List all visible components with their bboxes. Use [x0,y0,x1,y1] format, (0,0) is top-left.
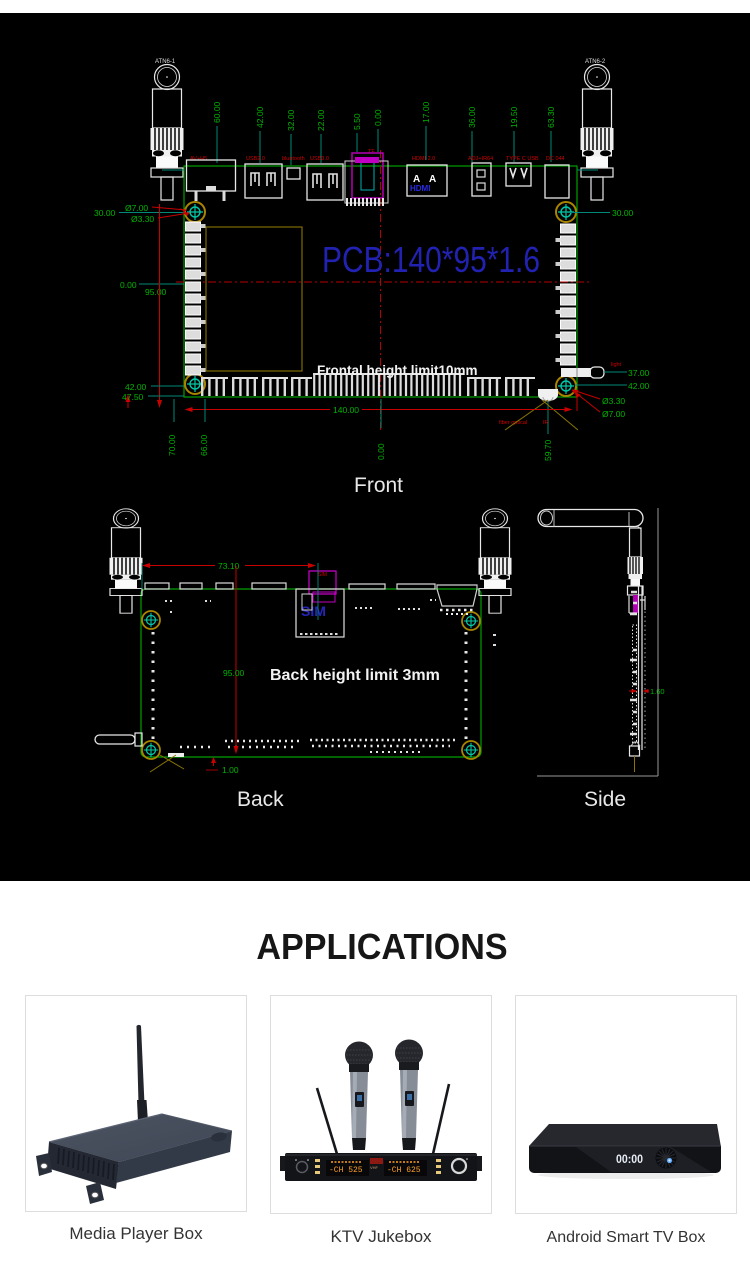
svg-text:0.00: 0.00 [376,443,386,460]
svg-text:32.00: 32.00 [286,109,296,131]
svg-text:Ø3.30: Ø3.30 [131,214,154,224]
svg-text:42.00: 42.00 [255,106,265,128]
svg-text:0.00: 0.00 [373,109,383,126]
svg-text:TYPE C USB: TYPE C USB [506,156,539,162]
svg-text:60.00: 60.00 [212,101,222,123]
svg-text:Ø7.00: Ø7.00 [125,203,148,213]
svg-text:light: light [611,362,622,368]
svg-text:1.00: 1.00 [222,765,239,775]
svg-text:140.00: 140.00 [333,405,359,415]
svg-text:0.00: 0.00 [120,280,137,290]
svg-text:22.00: 22.00 [316,109,326,131]
svg-text:AV+H5: AV+H5 [190,156,207,162]
svg-text:USB2.0: USB2.0 [246,156,265,162]
svg-text:95.00: 95.00 [223,668,245,678]
svg-text:SIM: SIM [318,572,327,578]
svg-text:30.00: 30.00 [94,208,116,218]
svg-text:fiber optical: fiber optical [499,420,527,426]
svg-text:63.30: 63.30 [546,106,556,128]
svg-text:TF: TF [368,149,375,155]
svg-text:SIM: SIM [301,603,326,619]
svg-text:HDMI 2.0: HDMI 2.0 [412,156,435,162]
svg-text:Side: Side [584,788,626,811]
svg-text:30.00: 30.00 [612,208,634,218]
svg-text:47.50: 47.50 [122,392,144,402]
svg-text:DC 044: DC 044 [546,156,565,162]
svg-text:bluetooth: bluetooth [282,156,305,162]
svg-text:00:00: 00:00 [616,1152,643,1166]
svg-text:19.50: 19.50 [509,106,519,128]
svg-text:1.60: 1.60 [650,687,665,696]
svg-text:ADJ+IR64: ADJ+IR64 [468,156,493,162]
svg-text:36.00: 36.00 [467,106,477,128]
svg-text:5.50: 5.50 [352,113,362,130]
svg-text:37.00: 37.00 [628,368,650,378]
svg-text:59.70: 59.70 [543,439,553,461]
svg-text:17.00: 17.00 [421,101,431,123]
svg-text:70.00: 70.00 [167,434,177,456]
svg-text:Ø7.00: Ø7.00 [602,409,625,419]
svg-text:-CH 525: -CH 525 [329,1166,363,1175]
svg-text:42.00: 42.00 [125,382,147,392]
svg-text:PCB:140*95*1.6: PCB:140*95*1.6 [322,239,540,280]
svg-text:IR: IR [543,420,549,426]
svg-text:66.00: 66.00 [199,434,209,456]
svg-text:-CH 625: -CH 625 [387,1166,421,1175]
svg-text:Back: Back [237,788,284,811]
svg-text:42.00: 42.00 [628,381,650,391]
svg-text:Back height limit 3mm: Back height limit 3mm [270,667,440,684]
svg-text:VHF: VHF [370,1165,379,1170]
svg-text:95.00: 95.00 [145,287,167,297]
svg-text:Frontal height limit10mm: Frontal height limit10mm [317,363,478,378]
svg-text:Ø3.30: Ø3.30 [602,396,625,406]
svg-text:Front: Front [354,474,403,497]
svg-text:USB3.0: USB3.0 [310,156,329,162]
svg-text:HDMI: HDMI [410,184,430,193]
